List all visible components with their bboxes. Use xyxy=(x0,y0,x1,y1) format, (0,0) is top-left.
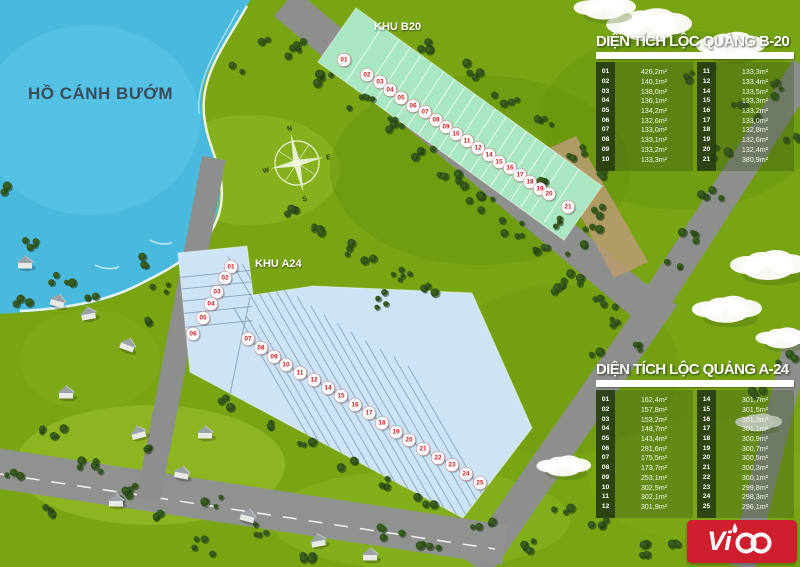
plot-area: 301,3m² xyxy=(716,415,794,424)
plot-id: 22 xyxy=(697,474,716,481)
table-row: 20132,4m² xyxy=(697,145,794,155)
table-row: 24298,3m² xyxy=(697,492,794,502)
table-row: 06132,6m² xyxy=(596,115,693,125)
plot-area: 133,0m² xyxy=(716,116,794,125)
table-row: 20300,5m² xyxy=(697,453,794,463)
plot-id: 18 xyxy=(697,126,716,133)
plot-area: 133,0m² xyxy=(615,125,693,134)
table-row: 15301,5m² xyxy=(697,405,794,415)
table-row: 03138,0m² xyxy=(596,86,693,96)
plot-area: 300,9m² xyxy=(716,434,794,443)
plot-id: 09 xyxy=(596,474,615,481)
plot-area: 132,6m² xyxy=(716,135,794,144)
table-row: 07175,5m² xyxy=(596,453,693,463)
table-row: 04136,1m² xyxy=(596,96,693,106)
plot-area: 173,7m² xyxy=(615,463,693,472)
plot-id: 05 xyxy=(596,435,615,442)
plot-area: 143,4m² xyxy=(615,434,693,443)
table-row: 12133,4m² xyxy=(697,77,794,87)
plot-id: 12 xyxy=(596,503,615,510)
table-b20-title: DIỆN TÍCH LỘC QUẢNG B-20 xyxy=(596,33,794,50)
table-row: 09253,1m² xyxy=(596,473,693,483)
plot-area: 134,2m² xyxy=(615,106,693,115)
plot-id: 01 xyxy=(596,68,615,75)
plot-id: 23 xyxy=(697,484,716,491)
plot-id: 10 xyxy=(596,156,615,163)
table-row: 17301,1m² xyxy=(697,424,794,434)
plot-area: 157,8m² xyxy=(615,405,693,414)
plot-area: 301,9m² xyxy=(615,502,693,511)
plot-id: 01 xyxy=(596,396,615,403)
table-a24-underline xyxy=(596,380,794,387)
plot-id: 11 xyxy=(697,68,716,75)
table-row: 14133,5m² xyxy=(697,86,794,96)
table-b20-underline xyxy=(596,52,794,59)
table-b20-right-column: 11133,3m²12133,4m²14133,5m²15133,3m²1613… xyxy=(697,62,794,171)
plot-area: 302,5m² xyxy=(615,483,693,492)
table-row: 16301,3m² xyxy=(697,414,794,424)
plot-area: 426,2m² xyxy=(615,67,693,76)
plot-id: 19 xyxy=(697,445,716,452)
plot-id: 07 xyxy=(596,126,615,133)
table-row: 08133,1m² xyxy=(596,135,693,145)
plot-area: 132,6m² xyxy=(615,116,693,125)
table-row: 03153,2m² xyxy=(596,414,693,424)
table-a24-title: DIỆN TÍCH LỘC QUẢNG A-24 xyxy=(596,361,794,378)
table-row: 17133,0m² xyxy=(697,115,794,125)
cloud-icon xyxy=(574,0,636,24)
plot-id: 16 xyxy=(697,416,716,423)
plot-area: 153,2m² xyxy=(615,415,693,424)
plot-id: 15 xyxy=(697,97,716,104)
plot-id: 11 xyxy=(596,493,615,500)
plot-area: 301,5m² xyxy=(716,405,794,414)
plot-area: 133,3m² xyxy=(615,155,693,164)
khu-a24-label: KHU A24 xyxy=(255,258,302,270)
plot-id: 04 xyxy=(596,97,615,104)
site-plan-map: N E S W HỒ CÁNH BƯỚM KHU B20 KHU A24 010… xyxy=(0,0,800,567)
plot-id: 24 xyxy=(697,493,716,500)
table-a24-panel: DIỆN TÍCH LỘC QUẢNG A-24 01162,4m²02157,… xyxy=(596,361,794,518)
vico-logo-flame-icon xyxy=(731,523,739,533)
table-row: 11302,1m² xyxy=(596,492,693,502)
table-row: 02140,1m² xyxy=(596,77,693,87)
plot-area: 133,4m² xyxy=(716,77,794,86)
plot-area: 253,1m² xyxy=(615,473,693,482)
table-row: 21300,3m² xyxy=(697,463,794,473)
table-row: 07133,0m² xyxy=(596,125,693,135)
plot-id: 21 xyxy=(697,464,716,471)
table-row: 23299,8m² xyxy=(697,482,794,492)
table-row: 02157,8m² xyxy=(596,405,693,415)
plot-area: 138,0m² xyxy=(615,87,693,96)
table-row: 05134,2m² xyxy=(596,106,693,116)
plot-id: 03 xyxy=(596,88,615,95)
plot-area: 281,6m² xyxy=(615,444,693,453)
plot-id: 10 xyxy=(596,484,615,491)
plot-id: 15 xyxy=(697,406,716,413)
plot-area: 299,8m² xyxy=(716,483,794,492)
table-row: 18300,9m² xyxy=(697,434,794,444)
table-row: 06281,6m² xyxy=(596,443,693,453)
table-b20-panel: DIỆN TÍCH LỘC QUẢNG B-20 01426,2m²02140,… xyxy=(596,33,794,171)
plot-area: 300,3m² xyxy=(716,463,794,472)
plot-id: 19 xyxy=(697,136,716,143)
table-b20-left-column: 01426,2m²02140,1m²03138,0m²04136,1m²0513… xyxy=(596,62,693,171)
plot-id: 04 xyxy=(596,425,615,432)
plot-id: 05 xyxy=(596,107,615,114)
plot-id: 18 xyxy=(697,435,716,442)
plot-area: 132,8m² xyxy=(716,125,794,134)
plot-id: 06 xyxy=(596,117,615,124)
plot-area: 140,1m² xyxy=(615,77,693,86)
table-a24-left-column: 01162,4m²02157,8m²03153,2m²04148,7m²0514… xyxy=(596,390,693,518)
plot-area: 133,5m² xyxy=(716,87,794,96)
table-row: 10133,3m² xyxy=(596,154,693,164)
plot-area: 133,3m² xyxy=(716,96,794,105)
plot-id: 07 xyxy=(596,454,615,461)
table-row: 05143,4m² xyxy=(596,434,693,444)
plot-area: 132,4m² xyxy=(716,145,794,154)
khu-b20-label: KHU B20 xyxy=(374,21,421,33)
plot-id: 06 xyxy=(596,445,615,452)
table-row: 12301,9m² xyxy=(596,502,693,512)
table-row: 18132,8m² xyxy=(697,125,794,135)
plot-id: 12 xyxy=(697,78,716,85)
plot-id: 03 xyxy=(596,416,615,423)
plot-area: 302,1m² xyxy=(615,492,693,501)
plot-id: 20 xyxy=(697,454,716,461)
plot-area: 301,1m² xyxy=(716,424,794,433)
cloud-icon xyxy=(730,250,800,285)
plot-id: 08 xyxy=(596,464,615,471)
plot-area: 175,5m² xyxy=(615,453,693,462)
table-row: 19300,7m² xyxy=(697,443,794,453)
plot-area: 133,1m² xyxy=(615,135,693,144)
plot-area: 148,7m² xyxy=(615,424,693,433)
vico-logo-rings-icon xyxy=(733,528,777,556)
plot-id: 17 xyxy=(697,117,716,124)
plot-id: 09 xyxy=(596,146,615,153)
plot-id: 02 xyxy=(596,406,615,413)
plot-area: 133,3m² xyxy=(716,67,794,76)
vico-logo-text: Vi xyxy=(707,528,732,555)
plot-id: 08 xyxy=(596,136,615,143)
plot-id: 17 xyxy=(697,425,716,432)
table-row: 10302,5m² xyxy=(596,482,693,492)
plot-id: 16 xyxy=(697,107,716,114)
plot-id: 21 xyxy=(697,156,716,163)
plot-area: 136,1m² xyxy=(615,96,693,105)
table-row: 21380,9m² xyxy=(697,154,794,164)
plot-id: 20 xyxy=(697,146,716,153)
plot-area: 133,2m² xyxy=(615,145,693,154)
plot-area: 133,2m² xyxy=(716,106,794,115)
plot-area: 380,9m² xyxy=(716,155,794,164)
table-row: 11133,3m² xyxy=(697,67,794,77)
table-a24-right-column: 14301,7m²15301,5m²16301,3m²17301,1m²1830… xyxy=(697,390,794,518)
cloud-icon xyxy=(755,327,800,352)
vico-logo: Vi xyxy=(687,520,797,563)
table-row: 22300,1m² xyxy=(697,473,794,483)
table-row: 01162,4m² xyxy=(596,395,693,405)
table-row: 09133,2m² xyxy=(596,145,693,155)
table-row: 19132,6m² xyxy=(697,135,794,145)
plot-area: 300,7m² xyxy=(716,444,794,453)
plot-area: 301,7m² xyxy=(716,395,794,404)
plot-area: 300,5m² xyxy=(716,453,794,462)
plot-id: 14 xyxy=(697,88,716,95)
table-row: 25296,1m² xyxy=(697,502,794,512)
plot-id: 02 xyxy=(596,78,615,85)
table-row: 15133,3m² xyxy=(697,96,794,106)
cloud-icon xyxy=(692,296,762,328)
plot-area: 296,1m² xyxy=(716,502,794,511)
table-row: 01426,2m² xyxy=(596,67,693,77)
table-row: 04148,7m² xyxy=(596,424,693,434)
plot-id: 25 xyxy=(697,503,716,510)
lake-label: HỒ CÁNH BƯỚM xyxy=(28,84,173,104)
table-row: 14301,7m² xyxy=(697,395,794,405)
plot-area: 162,4m² xyxy=(615,395,693,404)
table-row: 16133,2m² xyxy=(697,106,794,116)
plot-area: 298,3m² xyxy=(716,492,794,501)
table-row: 08173,7m² xyxy=(596,463,693,473)
plot-area: 300,1m² xyxy=(716,473,794,482)
plot-id: 14 xyxy=(697,396,716,403)
